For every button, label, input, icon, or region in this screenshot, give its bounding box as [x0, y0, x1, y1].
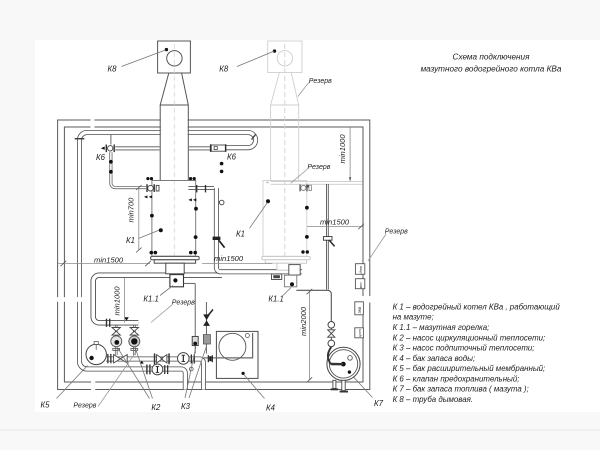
svg-text:min1000: min1000	[113, 286, 122, 316]
svg-text:К2: К2	[151, 403, 161, 412]
svg-text:Резерв: Резерв	[172, 299, 195, 306]
svg-text:мазутного водогрейного котла К: мазутного водогрейного котла КВа	[421, 65, 562, 74]
svg-text:К 7 – бак запаса топлива ( ма: К 7 – бак запаса топлива ( мазута );	[393, 385, 529, 394]
svg-text:Резерв: Резерв	[309, 78, 332, 85]
svg-text:К1: К1	[126, 236, 135, 245]
svg-text:на мазуте;: на мазуте;	[393, 313, 434, 322]
svg-text:экв: экв	[357, 306, 362, 313]
svg-text:Резерв: Резерв	[385, 228, 408, 235]
svg-text:К 8 – труба дымовая.: К 8 – труба дымовая.	[393, 395, 473, 404]
svg-text:min1500: min1500	[320, 217, 350, 226]
svg-text:К 4 – бак запаса воды;: К 4 – бак запаса воды;	[393, 354, 476, 363]
svg-text:К1.1: К1.1	[143, 295, 158, 304]
svg-text:min2000: min2000	[299, 306, 308, 336]
svg-text:Схема подключения: Схема подключения	[453, 53, 531, 62]
svg-text:К1.1: К1.1	[268, 295, 283, 304]
svg-text:К 5 – бак расширительный мемб: К 5 – бак расширительный мембранный;	[393, 364, 546, 373]
svg-text:min1500: min1500	[214, 254, 244, 263]
svg-text:К5: К5	[41, 401, 51, 410]
svg-text:К8: К8	[219, 65, 229, 74]
svg-text:К 6 – клапан предохранительны: К 6 – клапан предохранительный;	[393, 374, 520, 383]
svg-text:К1: К1	[236, 229, 245, 238]
svg-text:К 2 – насос циркуляционный те: К 2 – насос циркуляционный теплосети;	[393, 333, 546, 342]
svg-text:К 1 – водогрейный котел КВа ,: К 1 – водогрейный котел КВа , работающий	[393, 302, 561, 311]
svg-text:К3: К3	[181, 402, 191, 411]
svg-text:min1000: min1000	[338, 134, 347, 164]
svg-text:цнт: цнт	[357, 329, 362, 337]
svg-text:К7: К7	[374, 399, 384, 408]
svg-text:Резерв: Резерв	[73, 402, 96, 409]
svg-text:К8: К8	[108, 65, 118, 74]
svg-text:жт: жт	[358, 282, 363, 290]
svg-text:днт: днт	[358, 265, 363, 273]
svg-text:К6: К6	[227, 153, 237, 162]
svg-text:К6: К6	[96, 153, 106, 162]
svg-text:К 3 – насос подпиточный тепло: К 3 – насос подпиточный теплосети;	[393, 344, 535, 353]
svg-text:Резерв: Резерв	[307, 164, 330, 171]
svg-text:К 1.1 – мазутная горелка;: К 1.1 – мазутная горелка;	[393, 323, 490, 332]
svg-text:min1500: min1500	[94, 255, 124, 264]
svg-text:min700: min700	[127, 197, 136, 223]
svg-text:К4: К4	[266, 404, 276, 413]
